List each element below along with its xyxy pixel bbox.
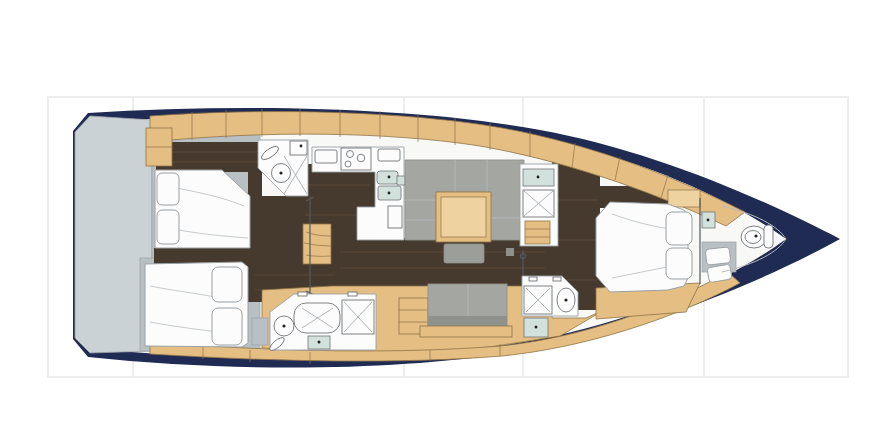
hatch	[348, 292, 357, 296]
hatch	[553, 277, 561, 281]
pillow	[666, 248, 692, 279]
bench-backrest	[428, 316, 507, 326]
floor-plan-page	[0, 0, 890, 446]
washbasin-icon	[290, 141, 307, 155]
pillow	[666, 212, 692, 245]
seat-cushion	[705, 247, 731, 265]
headboard-shelf	[668, 190, 700, 207]
bench-base	[420, 326, 512, 337]
pillow	[157, 173, 179, 205]
pillow	[212, 308, 242, 345]
appliance-door	[388, 206, 402, 228]
companionway-steps	[303, 224, 331, 264]
salon-table-top	[441, 197, 486, 237]
sink-icon	[377, 171, 398, 184]
faucet-icon	[397, 176, 405, 185]
starboard-mid-head	[520, 164, 558, 246]
vanity-cabinet	[525, 221, 550, 244]
stove-icon	[341, 148, 371, 170]
pillow	[157, 210, 179, 244]
fridge-icon	[315, 150, 337, 163]
head-cabinet	[252, 318, 268, 345]
counter-hatch	[378, 149, 400, 161]
post-block	[506, 248, 514, 256]
hatch	[298, 292, 307, 296]
pillow	[212, 267, 242, 302]
cistern	[764, 225, 773, 248]
stool	[444, 244, 484, 263]
floor-plan-drawing	[0, 0, 890, 446]
hatch	[529, 277, 537, 281]
port-aft-cabin	[145, 262, 248, 347]
